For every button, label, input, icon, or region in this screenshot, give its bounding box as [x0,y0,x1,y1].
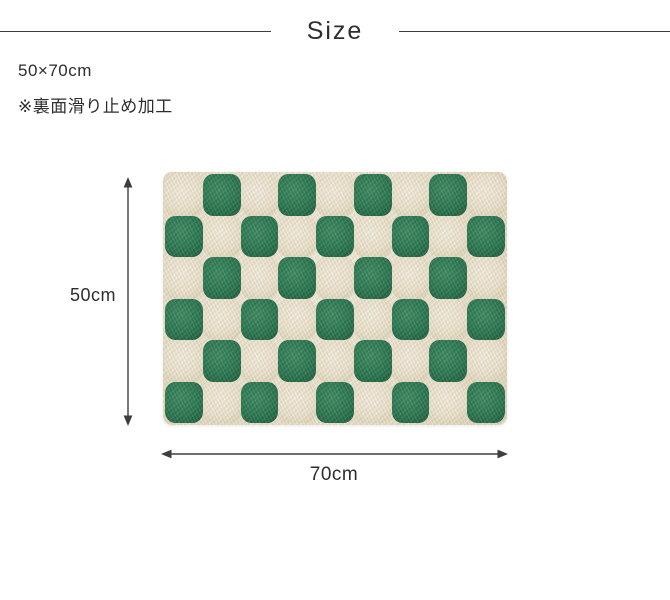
rug-cell [354,382,392,424]
rug-cell [429,340,467,382]
rug-cell [316,299,354,341]
rug-cell [392,216,430,258]
rug-cell [241,257,279,299]
rug-cell [467,216,505,258]
rug-cell [165,174,203,216]
rug-cell [467,340,505,382]
rug-cell [165,216,203,258]
size-diagram-page: Size 50×70cm ※裏面滑り止め加工 50cm 70cm [0,0,670,600]
height-dimension-label: 50cm [36,285,116,306]
rug-cell [203,174,241,216]
rug-cell [203,216,241,258]
rug-cell [165,382,203,424]
rug-cell [278,174,316,216]
rug-cell [203,340,241,382]
rug-cell [392,382,430,424]
rug-cell [278,216,316,258]
rug-cell [203,257,241,299]
rug-cell [429,382,467,424]
rug-cell [278,257,316,299]
width-dimension-label: 70cm [160,464,508,486]
rug-cell [392,299,430,341]
header-rule-left [0,31,271,32]
section-header: Size [0,14,670,48]
rug-cell [316,257,354,299]
section-title: Size [307,17,364,46]
anti-slip-note-text: ※裏面滑り止め加工 [18,92,173,117]
rug-cell [467,174,505,216]
rug-cell [278,299,316,341]
rug-cell [165,299,203,341]
rug-cell [316,174,354,216]
width-arrow [161,450,508,459]
rug-cell [392,340,430,382]
rug-cell [392,257,430,299]
header-rule-right [399,31,670,32]
rug-cell [354,257,392,299]
rug-cell [429,299,467,341]
size-spec-text: 50×70cm [18,61,92,81]
rug-cell [203,382,241,424]
rug-cell [429,257,467,299]
rug-cell [278,340,316,382]
rug-cell [392,174,430,216]
rug-cell [354,216,392,258]
rug-cell [241,340,279,382]
rug-cell [241,299,279,341]
rug-cell [316,340,354,382]
rug-cell [278,382,316,424]
rug-cell [165,257,203,299]
rug-cell [429,174,467,216]
rug-cell [203,299,241,341]
rug-cell [165,340,203,382]
rug-cell [241,382,279,424]
rug-cell [316,382,354,424]
rug-cell [467,382,505,424]
rug-cell [354,299,392,341]
rug-cell [241,216,279,258]
rug-cell [467,257,505,299]
rug-cell [354,340,392,382]
rug-image [163,172,507,425]
rug-cell [354,174,392,216]
rug-cell [316,216,354,258]
rug-cell [467,299,505,341]
rug-cell [241,174,279,216]
rug-cell [429,216,467,258]
height-arrow [124,177,133,426]
